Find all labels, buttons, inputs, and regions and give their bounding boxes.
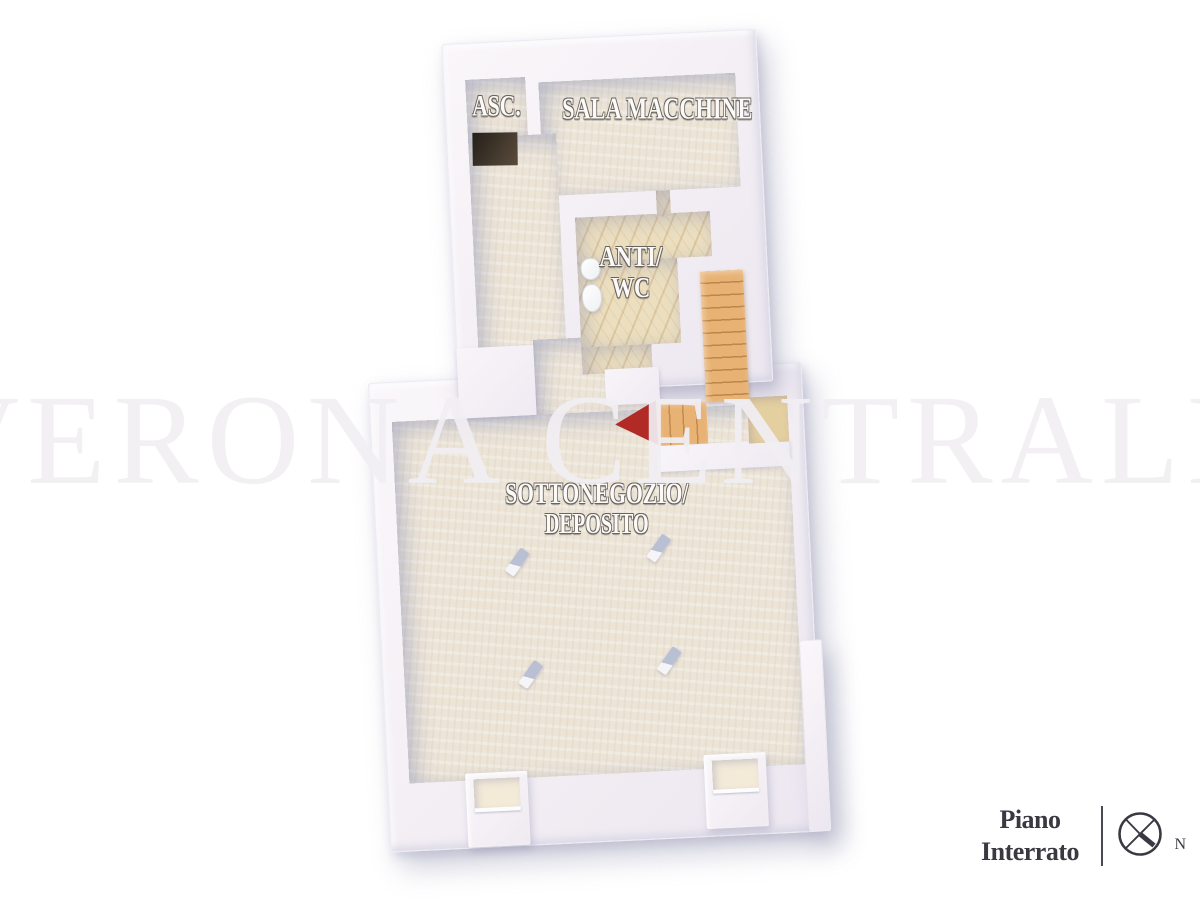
room-label-sottonegozio-line1: SOTTONEGOZIO/ — [487, 478, 707, 510]
building-plan: ASC. SALA MACCHINE ANTI/ WC SOTTONEGOZIO… — [336, 11, 857, 893]
stair-side-wall — [604, 367, 660, 406]
room-label-anti-line1: ANTI/ — [590, 242, 671, 273]
floor-name-line2: Interrato — [972, 836, 1088, 868]
legend-divider — [1101, 806, 1103, 866]
elevator-shaft-opening — [472, 132, 517, 166]
compass-north-label: N — [1174, 836, 1186, 854]
room-label-sottonegozio-line2: DEPOSITO — [487, 510, 707, 540]
room-label-asc: ASC. — [468, 90, 526, 122]
window-well-right-floor — [712, 758, 759, 790]
room-label-anti-wc: ANTI/ WC — [590, 242, 671, 305]
corridor-jog-wall — [456, 345, 536, 419]
room-label-sala-macchine: SALA MACCHINE — [562, 92, 713, 125]
staircase-run — [700, 270, 749, 402]
compass-rose-icon — [1116, 810, 1166, 860]
floor-plan-render: ASC. SALA MACCHINE ANTI/ WC SOTTONEGOZIO… — [0, 0, 1200, 900]
staircase-turn — [656, 402, 708, 446]
floor-legend: Piano Interrato N — [972, 800, 1186, 872]
staircase-landing — [747, 396, 789, 444]
corridor-floor — [468, 134, 567, 363]
floor-name-label: Piano Interrato — [972, 804, 1088, 867]
window-well-left-floor — [473, 777, 520, 809]
room-label-sottonegozio: SOTTONEGOZIO/ DEPOSITO — [487, 478, 707, 541]
compass-icon: N — [1116, 808, 1186, 864]
room-label-anti-line2: WC — [590, 273, 671, 304]
floor-name-line1: Piano — [972, 804, 1088, 836]
anti-wc-doorway — [656, 190, 671, 217]
